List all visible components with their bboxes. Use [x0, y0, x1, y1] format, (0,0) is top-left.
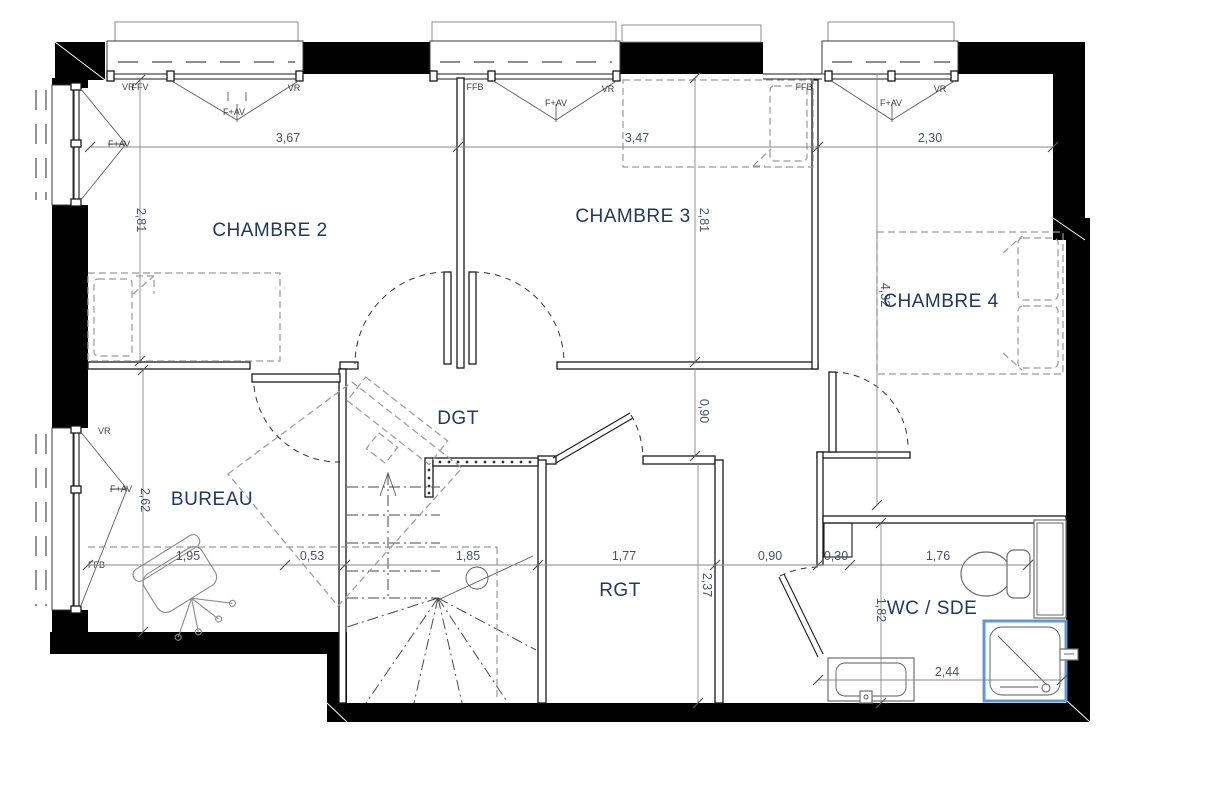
door-bureau — [252, 374, 340, 462]
bed-chambre3 — [623, 80, 813, 167]
door-wc — [779, 567, 823, 657]
shower — [984, 621, 1078, 701]
door-chambre3 — [469, 272, 564, 364]
dim-bottom-2: 0,53 — [300, 549, 324, 563]
dim-dgt-passage: 0,90 — [697, 399, 711, 423]
window-label: VR — [602, 84, 615, 94]
dim-bottom-7: 1,76 — [926, 549, 950, 563]
dim-chambre3-h: 2,81 — [697, 208, 711, 232]
shutter-boxes — [115, 22, 954, 42]
washbasin — [828, 658, 914, 703]
dim-chambre2-h: 2,81 — [134, 208, 148, 232]
dim-bottom-5: 0,90 — [758, 549, 782, 563]
dim-bureau-h: 2,62 — [138, 488, 152, 512]
window-label: F+AV — [545, 98, 567, 108]
window-label: VR — [288, 83, 301, 93]
window-left-bureau: VR F+AV FFB — [36, 426, 132, 613]
dim-bottom-4: 1,77 — [612, 549, 636, 563]
room-label-chambre3: CHAMBRE 3 — [575, 206, 690, 227]
window-label: F+AV — [223, 107, 245, 117]
attic-slope-line — [88, 547, 497, 700]
bed-chambre2 — [88, 273, 280, 361]
floor-plan-page: FFV VR F+AV FFB VR F+AV FFB VR F+AV — [0, 0, 1221, 800]
door-rgt — [553, 413, 643, 463]
dim-bottom-1: 1,95 — [176, 549, 200, 563]
staircase — [347, 473, 536, 703]
room-label-chambre4: CHAMBRE 4 — [883, 291, 998, 312]
dim-wc-width: 2,44 — [935, 665, 959, 679]
window-label: VR — [934, 84, 947, 94]
room-label-chambre2: CHAMBRE 2 — [212, 220, 327, 241]
dim-top-3: 2,30 — [918, 131, 942, 145]
dim-bottom-3: 1,85 — [456, 549, 480, 563]
door-chambre4 — [829, 372, 908, 452]
window-label: F+AV — [108, 139, 130, 149]
window-label: VR — [98, 426, 111, 436]
dim-top-1: 3,67 — [276, 131, 300, 145]
window-label: VR — [122, 82, 135, 92]
window-label: F+AV — [880, 98, 902, 108]
window-label: F+AV — [110, 484, 132, 494]
toilet — [961, 550, 1030, 598]
window-bay-chambre2: FFV VR F+AV — [107, 41, 303, 122]
room-labels: CHAMBRE 2 CHAMBRE 3 CHAMBRE 4 DGT BUREAU… — [171, 206, 999, 619]
window-label: FFB — [467, 82, 484, 92]
room-label-dgt: DGT — [437, 408, 479, 429]
door-chambre2 — [355, 272, 451, 364]
floor-plan-drawing: FFV VR F+AV FFB VR F+AV FFB VR F+AV — [0, 0, 1221, 800]
dim-top-2: 3,47 — [625, 131, 649, 145]
window-label: FFB — [796, 82, 813, 92]
dim-rgt-h: 2,37 — [700, 573, 714, 597]
window-left-chambre2: VR F+AV — [36, 82, 135, 206]
room-label-wc-sde: WC / SDE — [887, 598, 978, 619]
room-label-bureau: BUREAU — [171, 489, 253, 510]
room-label-rgt: RGT — [599, 580, 641, 601]
window-bay-chambre4: VR F+AV — [822, 41, 958, 122]
dim-bottom-6: 0,30 — [824, 549, 848, 563]
bathroom-cabinet — [1034, 520, 1066, 618]
